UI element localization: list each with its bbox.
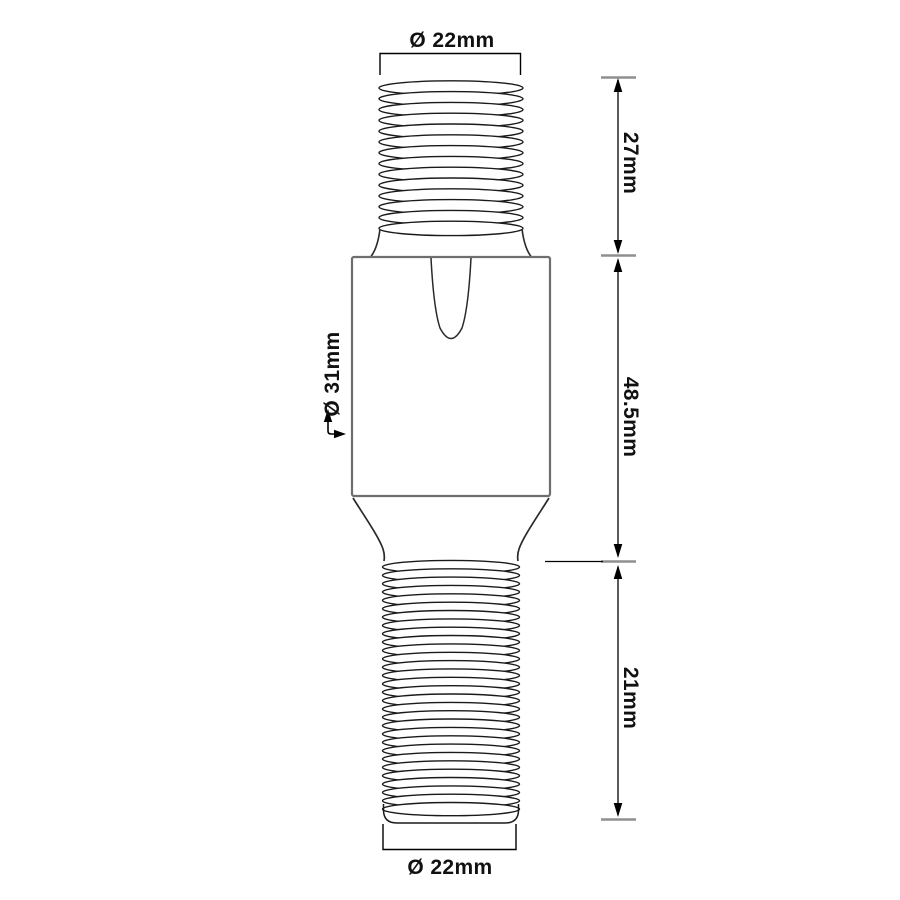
drawing-canvas: Ø 22mm 27mm 48.5mm Ø 31mm 21mm Ø 22mm — [0, 0, 900, 900]
label-top-diameter: Ø 22mm — [409, 29, 494, 52]
neck-right-line — [522, 229, 532, 257]
thread-ridge — [383, 803, 520, 816]
leader-arrow-right — [334, 430, 346, 438]
bracket-bottom-diameter — [383, 824, 516, 850]
top-thread-section — [379, 81, 523, 236]
arrow-27mm-top — [614, 78, 623, 92]
neck-left-line — [371, 229, 381, 257]
bracket-top-diameter — [380, 54, 521, 76]
label-top-thread-length: 27mm — [619, 132, 642, 194]
taper-left-line — [353, 498, 384, 561]
arrow-48-5mm-top — [614, 258, 623, 272]
label-bottom-diameter: Ø 22mm — [407, 856, 492, 879]
arrow-27mm-bottom — [614, 240, 623, 254]
arrow-48-5mm-bottom — [614, 544, 623, 558]
label-body-diameter: Ø 31mm — [321, 331, 344, 416]
arrow-21mm-bottom — [614, 803, 623, 817]
label-bottom-thread-length: 21mm — [619, 667, 642, 729]
thread-ridge — [379, 221, 523, 235]
bottom-thread-section — [383, 560, 520, 815]
part — [352, 81, 550, 823]
label-body-length: 48.5mm — [619, 377, 642, 458]
body-section — [352, 257, 550, 496]
technical-drawing: Ø 22mm 27mm 48.5mm Ø 31mm 21mm Ø 22mm — [0, 0, 900, 900]
arrow-21mm-top — [614, 565, 623, 579]
taper-right-line — [518, 498, 549, 561]
